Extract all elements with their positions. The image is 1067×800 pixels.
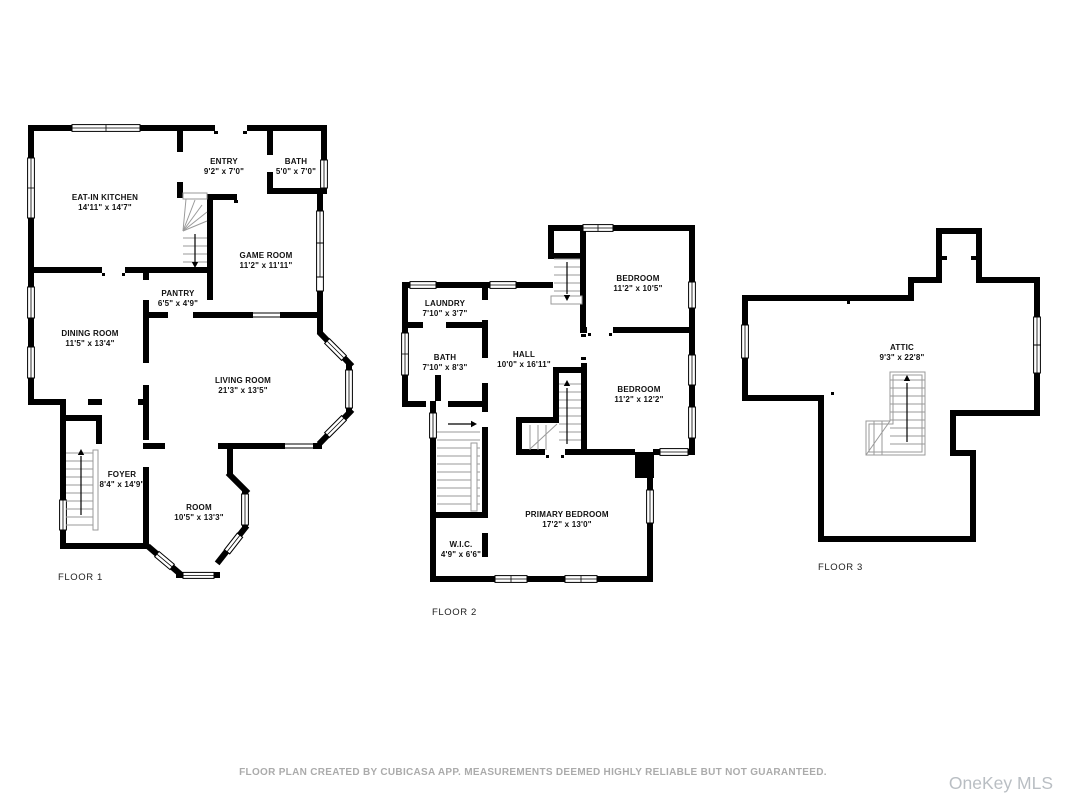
room-dims-hall: 10'0" x 16'11" [497,360,551,369]
room-label-bath-f1: BATH [285,157,307,166]
floor-plan-image: EAT-IN KITCHEN 14'11" x 14'7" ENTRY 9'2"… [0,0,1067,800]
room-dims-dining-room: 11'5" x 13'4" [65,339,114,348]
room-dims-pantry: 6'5" x 4'9" [158,299,198,308]
floor-2-stairs [437,259,582,511]
room-label-foyer: FOYER [108,470,137,479]
room-dims-living-room: 21'3" x 13'5" [218,386,268,395]
room-label-eat-in-kitchen: EAT-IN KITCHEN [72,193,138,202]
room-label-room: ROOM [186,503,212,512]
floor-2-plan: LAUNDRY 7'10" x 3'7" BEDROOM 11'2" x 10'… [402,225,696,618]
floor-3-stairs [866,372,925,455]
room-dims-bath-f1: 5'0" x 7'0" [276,167,316,176]
room-dims-foyer: 8'4" x 14'9" [100,480,145,489]
room-label-primary-bedroom: PRIMARY BEDROOM [525,510,609,519]
room-label-bedroom-1: BEDROOM [616,274,659,283]
room-dims-wic: 4'9" x 6'6" [441,550,481,559]
room-dims-eat-in-kitchen: 14'11" x 14'7" [78,203,132,212]
room-label-game-room: GAME ROOM [240,251,293,260]
room-label-entry: ENTRY [210,157,238,166]
room-dims-laundry: 7'10" x 3'7" [423,309,468,318]
footer: FLOOR PLAN CREATED BY CUBICASA APP. MEAS… [239,767,1053,793]
room-dims-bath-f2: 7'10" x 8'3" [423,363,468,372]
room-label-attic: ATTIC [890,343,914,352]
room-dims-primary-bedroom: 17'2" x 13'0" [542,520,592,529]
room-dims-game-room: 11'2" x 11'11" [240,261,293,270]
room-label-wic: W.I.C. [450,540,473,549]
floor-plan-page: EAT-IN KITCHEN 14'11" x 14'7" ENTRY 9'2"… [0,0,1067,800]
room-label-laundry: LAUNDRY [425,299,466,308]
room-dims-room: 10'5" x 13'3" [174,513,224,522]
floor-2-label: FLOOR 2 [432,607,477,618]
floor-1-label: FLOOR 1 [58,572,103,583]
room-label-hall: HALL [513,350,535,359]
floor-3-plan: ATTIC 9'3" x 22'8" FLOOR 3 [742,228,1041,573]
room-dims-bedroom-2: 11'2" x 12'2" [614,395,663,404]
room-label-bedroom-2: BEDROOM [617,385,660,394]
room-label-bath-f2: BATH [434,353,456,362]
floor-3-label: FLOOR 3 [818,562,863,573]
room-dims-entry: 9'2" x 7'0" [204,167,244,176]
floor-1-plan: EAT-IN KITCHEN 14'11" x 14'7" ENTRY 9'2"… [28,125,353,583]
watermark-text: OneKey MLS [949,773,1053,793]
room-label-dining-room: DINING ROOM [61,329,118,338]
room-label-pantry: PANTRY [161,289,195,298]
room-dims-bedroom-1: 11'2" x 10'5" [613,284,662,293]
disclaimer-text: FLOOR PLAN CREATED BY CUBICASA APP. MEAS… [239,767,827,778]
room-label-living-room: LIVING ROOM [215,376,271,385]
room-dims-attic: 9'3" x 22'8" [880,353,925,362]
